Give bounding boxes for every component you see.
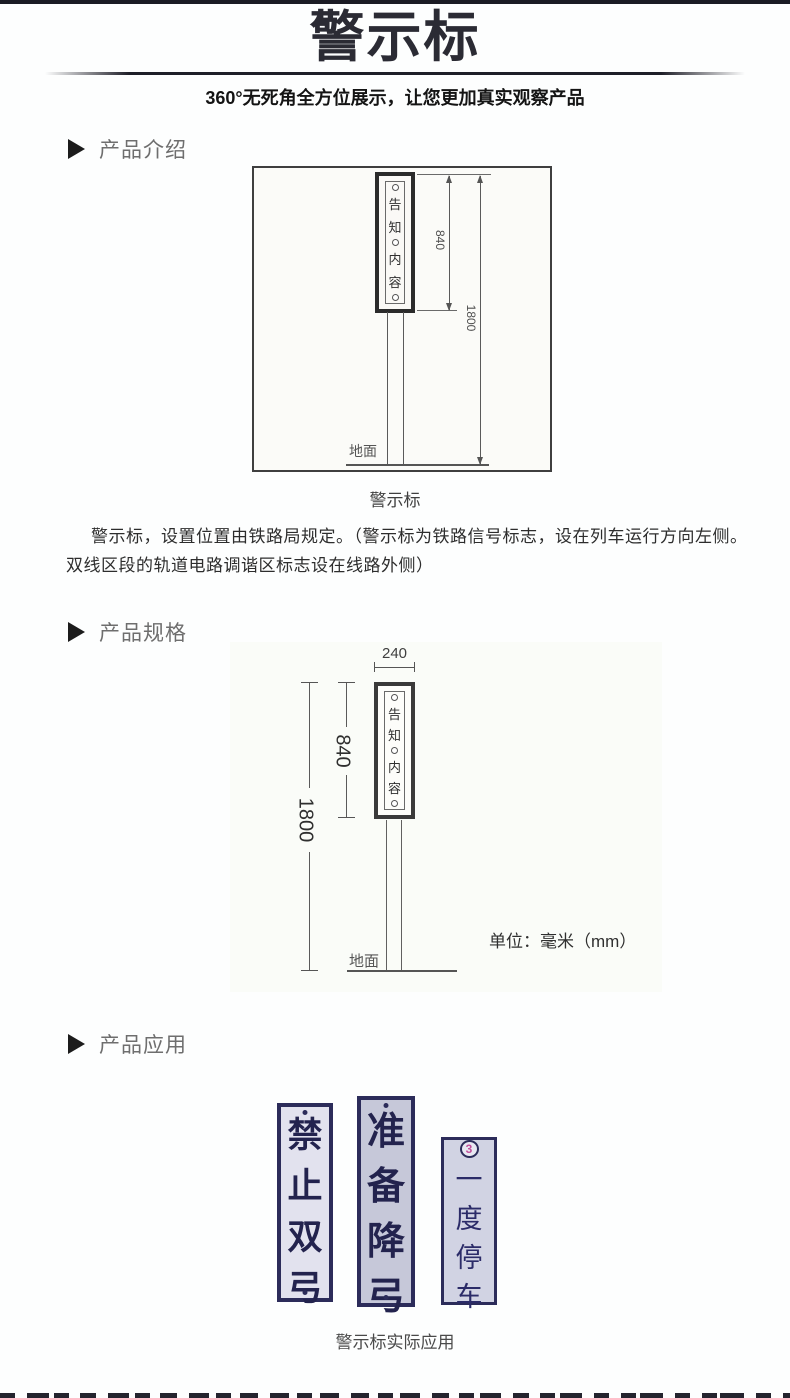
mounting-hole [303, 1110, 308, 1115]
intro-diagram: 告 知 内 容 840 1800 地面 [252, 166, 552, 472]
sign-char: 度 [456, 1197, 483, 1236]
section-header-intro: 产品介绍 [68, 134, 187, 164]
ground-label: 地面 [349, 950, 379, 971]
dim-label-1800: 1800 [294, 798, 317, 843]
dim-label-240: 240 [374, 645, 415, 662]
bolt-hole [391, 694, 398, 701]
sign-char: 知 [388, 217, 401, 236]
triangle-bullet-icon [68, 139, 85, 159]
intro-diagram-caption: 警示标 [0, 486, 790, 511]
sign-char: 准 [367, 1100, 405, 1155]
bolt-hole [392, 294, 399, 301]
post-line [403, 312, 404, 464]
bolt-hole [391, 747, 398, 754]
page-subtitle: 360°无死角全方位展示，让您更加真实观察产品 [0, 84, 790, 110]
arrow-down-icon [446, 303, 452, 311]
post-line [401, 820, 402, 970]
mounting-hole [303, 1290, 308, 1295]
dim-line-240 [374, 667, 415, 668]
dim-label-1800: 1800 [464, 305, 478, 332]
product-page: 警示标 360°无死角全方位展示，让您更加真实观察产品 产品介绍 告 知 内 容… [0, 0, 790, 1398]
badge-circle-3-icon: 3 [460, 1140, 479, 1158]
sign-char: 备 [367, 1155, 405, 1210]
mounting-hole [384, 1295, 389, 1300]
section-label: 产品规格 [99, 617, 187, 647]
page-title: 警示标 [0, 4, 790, 70]
unit-note: 单位：毫米（mm） [489, 927, 636, 952]
section-header-app: 产品应用 [68, 1029, 187, 1059]
sign-char: 知 [388, 725, 401, 744]
arrow-up-icon [477, 175, 483, 183]
dim-tick [374, 662, 375, 672]
section-header-spec: 产品规格 [68, 617, 187, 647]
sign-char: 降 [367, 1210, 405, 1265]
sign-char: 弓 [287, 1260, 322, 1311]
diagram-sign-text: 告 知 内 容 [384, 691, 405, 810]
dim-line-840 [346, 683, 347, 727]
mounting-hole [384, 1103, 389, 1108]
sign-char: 告 [388, 704, 401, 723]
app-sign-jinzhishuanggong: 禁 止 双 弓 [277, 1103, 333, 1302]
app-sign-yidutingche: 3 一 度 停 车 [441, 1137, 497, 1305]
sign-char: 停 [456, 1236, 483, 1275]
dim-line-840 [449, 176, 450, 310]
sign-char: 内 [388, 757, 401, 776]
triangle-bullet-icon [68, 622, 85, 642]
bolt-hole [391, 800, 398, 807]
bottom-cutoff-dashes [0, 1393, 790, 1398]
sign-char: 容 [388, 272, 401, 291]
dim-line-1800 [480, 176, 481, 464]
diagram-sign-plate: 告 知 内 容 [374, 682, 415, 819]
sign-char: 告 [388, 194, 401, 213]
ground-line [346, 464, 489, 466]
diagram-sign-plate: 告 知 内 容 [375, 172, 415, 313]
dim-tick [338, 817, 355, 818]
dim-label-840: 840 [433, 230, 447, 250]
post-line [386, 820, 387, 970]
bolt-hole [392, 239, 399, 246]
app-sign-zhunbeijianggong: 准 备 降 弓 [357, 1096, 415, 1307]
post-line [387, 312, 388, 464]
sign-char: 容 [388, 778, 401, 797]
app-caption: 警示标实际应用 [0, 1328, 790, 1353]
sign-char: 内 [388, 249, 401, 268]
dim-line-1800 [309, 683, 310, 788]
intro-description: 警示标，设置位置由铁路局规定。（警示标为铁路信号标志，设在列车运行方向左侧。双线… [66, 522, 752, 580]
sign-char: 一 [456, 1158, 483, 1197]
sign-char: 弓 [367, 1265, 405, 1320]
dim-label-840: 840 [331, 734, 354, 767]
ground-label: 地面 [349, 441, 377, 461]
triangle-bullet-icon [68, 1034, 85, 1054]
section-label: 产品应用 [99, 1029, 187, 1059]
dim-tick [301, 970, 318, 971]
sign-char: 止 [287, 1158, 322, 1209]
title-divider [45, 72, 745, 75]
diagram-sign-text: 告 知 内 容 [385, 181, 405, 304]
dim-line-840 [346, 775, 347, 817]
sign-char: 车 [456, 1275, 483, 1314]
section-label: 产品介绍 [99, 134, 187, 164]
sign-char: 双 [287, 1209, 322, 1260]
dim-line-1800 [309, 852, 310, 970]
dim-tick [414, 662, 415, 672]
arrow-up-icon [446, 175, 452, 183]
bolt-hole [392, 184, 399, 191]
